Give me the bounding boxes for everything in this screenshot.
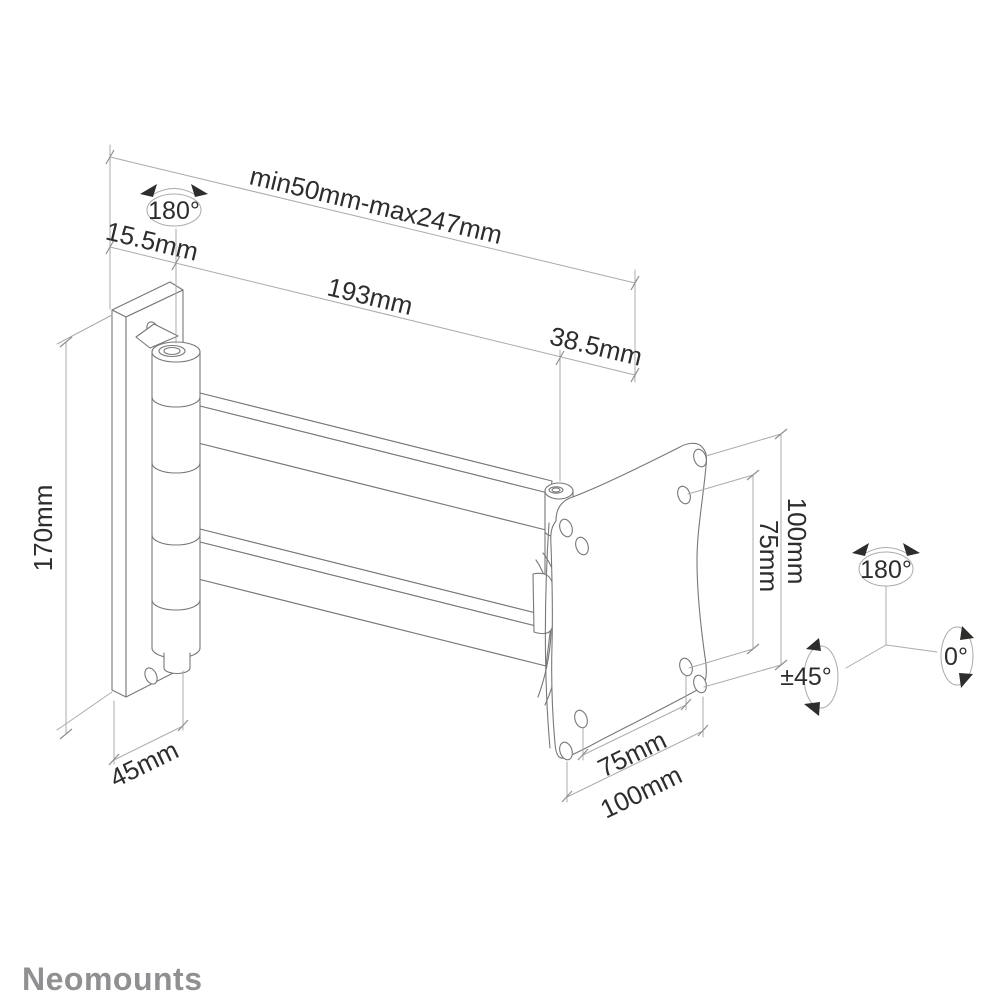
dim-wall-plate-width: 45mm — [105, 735, 183, 794]
dim-vesa-height-inner: 75mm — [754, 520, 784, 592]
swivel-arm-lower — [174, 524, 552, 666]
dim-wall-plate-height: 170mm — [28, 485, 58, 572]
wall-hinge-column — [152, 342, 200, 674]
angle-screen-rotation: 0° — [944, 643, 968, 671]
dim-vesa-height-outer: 100mm — [782, 498, 812, 585]
swivel-arm-upper — [174, 388, 552, 530]
dim-head-offset: 38.5mm — [547, 321, 645, 372]
dim-arm-length: 193mm — [324, 272, 415, 321]
brand-logo: Neomounts — [22, 961, 203, 997]
angle-head-swivel: 180° — [860, 556, 912, 584]
angle-wall-swivel: 180° — [148, 197, 200, 225]
product-dimension-diagram: min50mm-max247mm 15.5mm 193mm 38.5mm 170… — [0, 0, 1004, 1004]
angle-tilt: ±45° — [780, 663, 832, 691]
wall-mount-drawing: min50mm-max247mm 15.5mm 193mm 38.5mm 170… — [0, 0, 1004, 1004]
dim-extension-range: min50mm-max247mm — [247, 160, 505, 250]
